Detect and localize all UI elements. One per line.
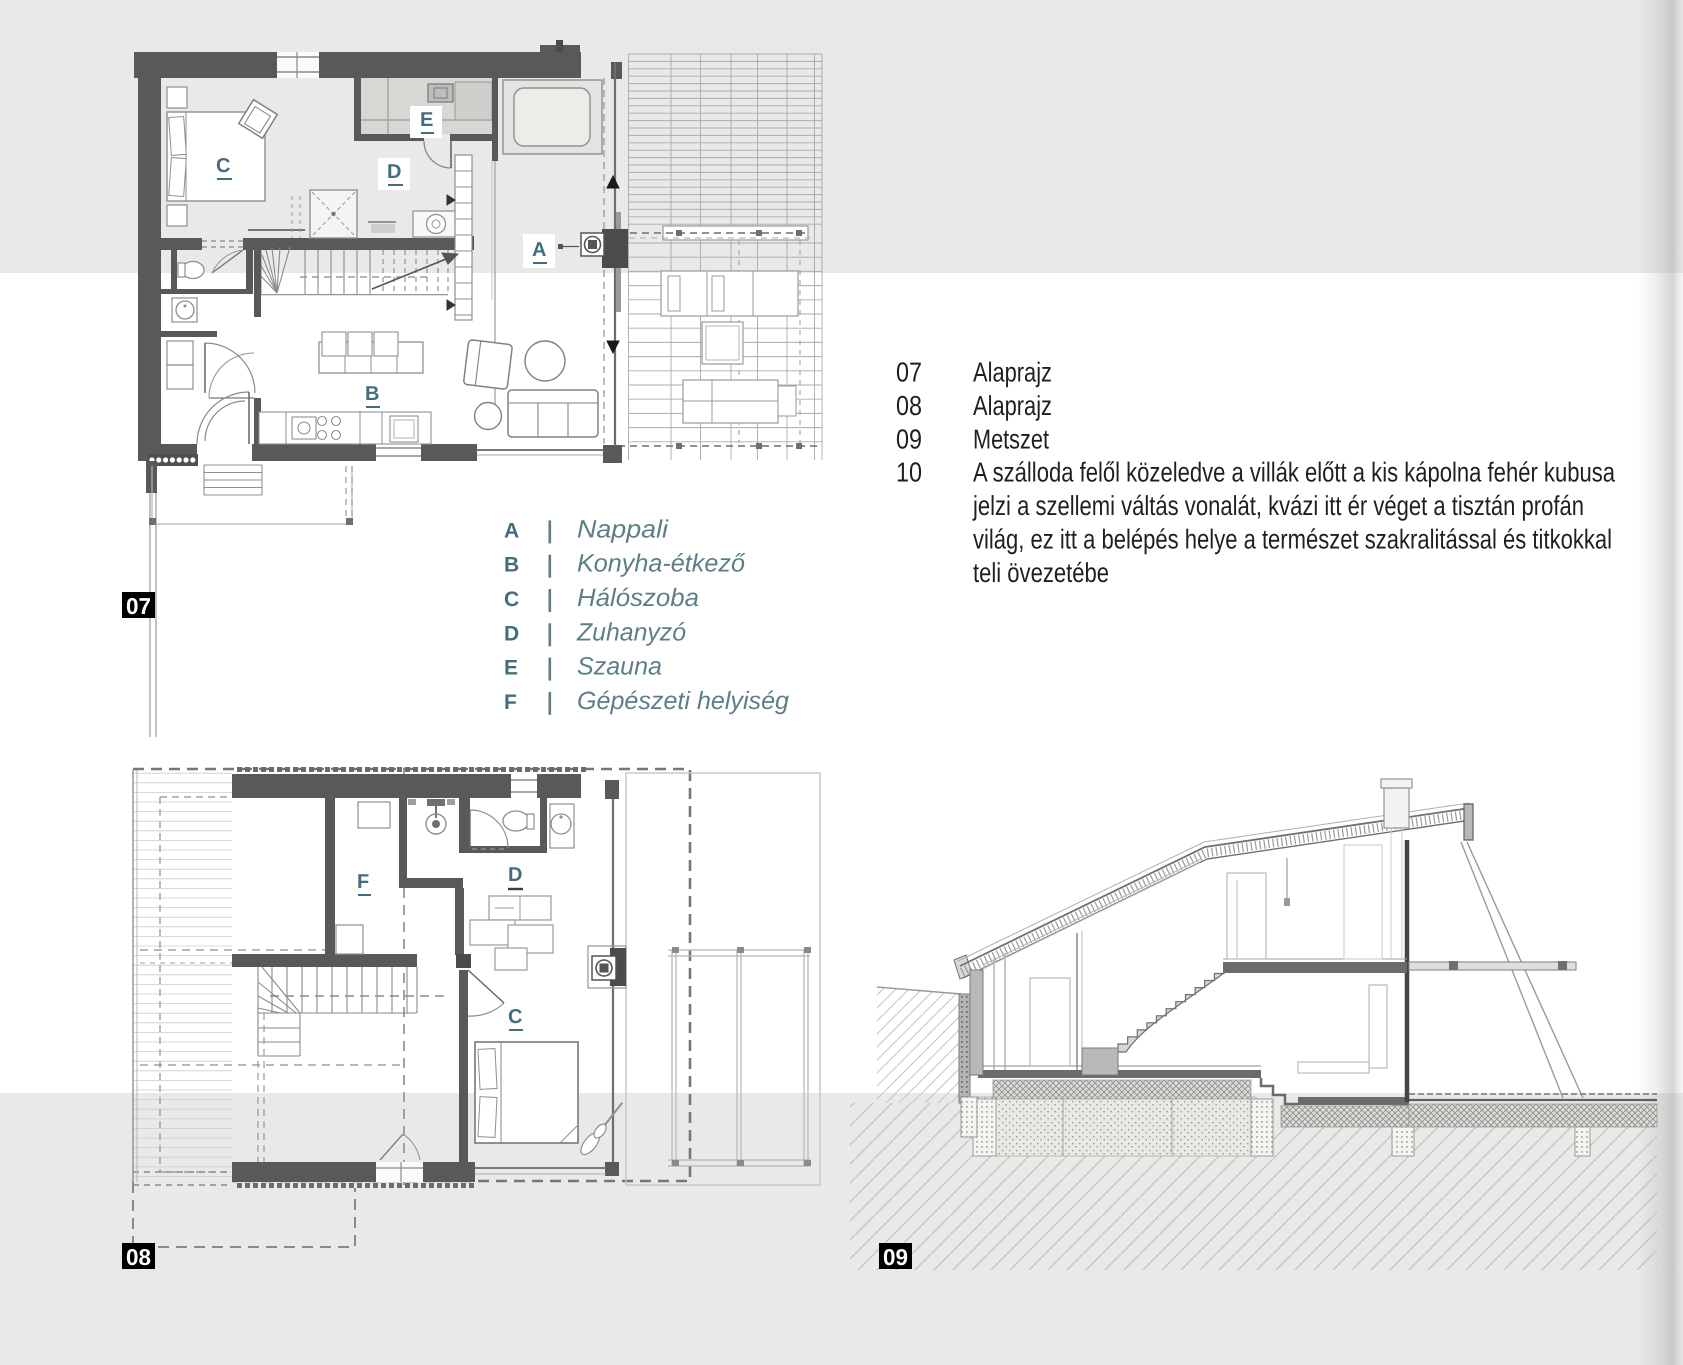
svg-text:A: A: [504, 519, 519, 542]
svg-text:A: A: [532, 239, 546, 261]
svg-text:C: C: [504, 588, 519, 611]
svg-text:Alaprajz: Alaprajz: [973, 390, 1052, 421]
svg-text:teli övezetébe: teli övezetébe: [973, 557, 1109, 588]
svg-text:Alaprajz: Alaprajz: [973, 357, 1052, 388]
svg-text:E: E: [504, 657, 518, 680]
svg-text:D: D: [508, 864, 522, 886]
svg-text:B: B: [365, 383, 379, 405]
svg-text:F: F: [357, 871, 369, 893]
svg-text:jelzi a szellemi váltás vonalá: jelzi a szellemi váltás vonalát, kvázi i…: [972, 490, 1584, 521]
svg-text:Hálószoba: Hálószoba: [577, 584, 699, 612]
svg-text:F: F: [504, 691, 517, 714]
svg-text:Szauna: Szauna: [577, 653, 662, 681]
svg-text:Zuhanyzó: Zuhanyzó: [576, 618, 686, 646]
svg-text:D: D: [504, 622, 519, 645]
svg-text:B: B: [504, 554, 519, 577]
svg-text:10: 10: [896, 457, 922, 488]
svg-text:E: E: [420, 109, 433, 131]
svg-text:07: 07: [126, 593, 151, 619]
svg-text:07: 07: [896, 357, 922, 388]
svg-text:08: 08: [896, 390, 922, 421]
svg-text:A szálloda felől közeledve a v: A szálloda felől közeledve a villák előt…: [973, 457, 1616, 488]
svg-text:Metszet: Metszet: [973, 423, 1049, 454]
svg-text:Nappali: Nappali: [577, 515, 670, 543]
svg-text:C: C: [216, 155, 230, 177]
svg-text:08: 08: [126, 1244, 151, 1270]
svg-text:09: 09: [883, 1244, 908, 1270]
svg-text:C: C: [508, 1006, 522, 1028]
svg-text:D: D: [387, 161, 401, 183]
svg-text:09: 09: [896, 423, 922, 454]
svg-text:Gépészeti helyiség: Gépészeti helyiség: [577, 687, 789, 715]
svg-text:világ, ez itt a belépés helye: világ, ez itt a belépés helye a természe…: [973, 524, 1612, 555]
svg-text:Konyha-étkező: Konyha-étkező: [577, 550, 746, 578]
